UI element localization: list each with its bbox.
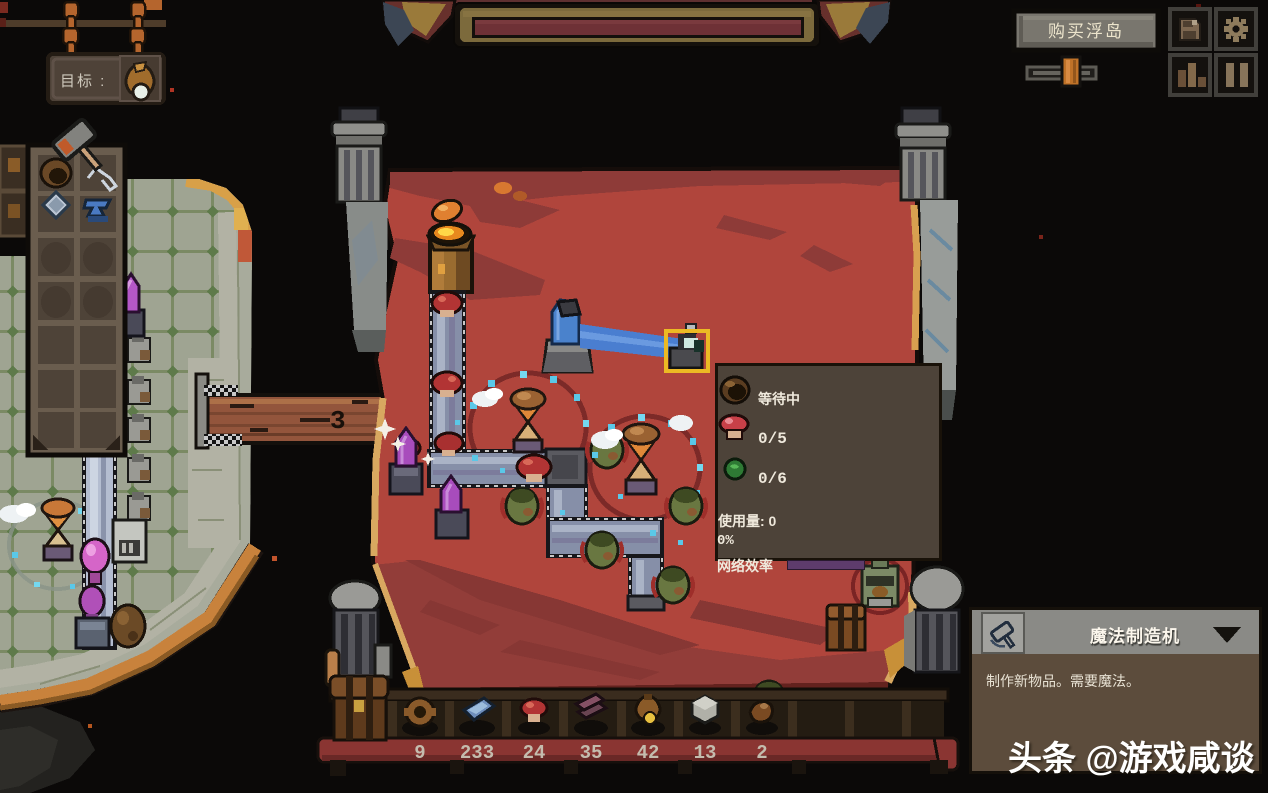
svg-text:9: 9 xyxy=(414,742,425,764)
svg-text:2: 2 xyxy=(756,742,767,764)
svg-text:3: 3 xyxy=(330,406,346,436)
svg-text:目标 :: 目标 : xyxy=(60,73,106,90)
svg-text:购买浮岛: 购买浮岛 xyxy=(1048,22,1124,41)
svg-text:233: 233 xyxy=(460,742,494,764)
svg-text:13: 13 xyxy=(694,742,717,764)
svg-text:35: 35 xyxy=(580,742,603,764)
svg-text:24: 24 xyxy=(523,742,546,764)
svg-text:42: 42 xyxy=(637,742,660,764)
